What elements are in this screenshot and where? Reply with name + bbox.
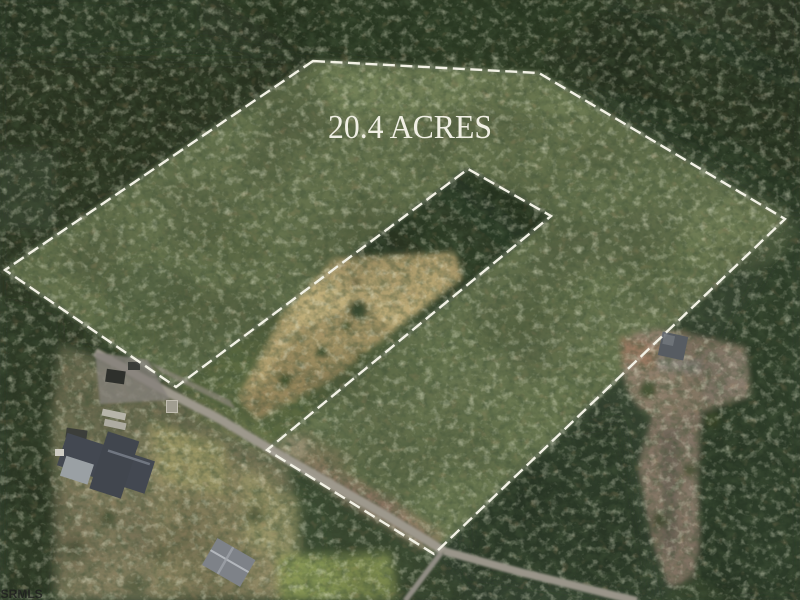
- svg-text:20.4 ACRES: 20.4 ACRES: [328, 109, 492, 146]
- svg-text:JSRMLS: JSRMLS: [0, 587, 43, 600]
